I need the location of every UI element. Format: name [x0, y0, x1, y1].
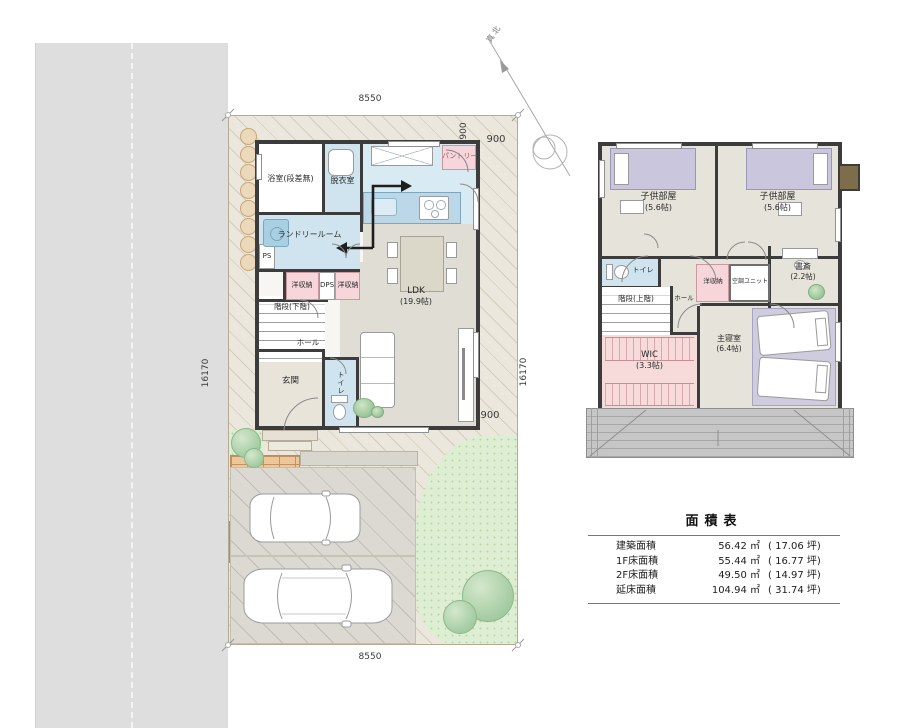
room-label-wic: WIC (3.3帖)	[602, 350, 697, 371]
room-label-toilet-2f: トイレ	[628, 266, 658, 275]
table-row: 2F床面積 49.50 ㎡ ( 14.97 坪)	[588, 569, 840, 584]
window	[256, 154, 262, 180]
row-m2: 55.44 ㎡	[688, 555, 760, 570]
area-table-title: 面積表	[588, 510, 840, 529]
tree-icon	[443, 600, 477, 634]
sofa-icon	[360, 332, 395, 408]
roof-1f	[586, 408, 854, 458]
room-label-master: 主寝室 (6.4帖)	[698, 334, 760, 354]
room-label-ldk: LDK (19.9帖)	[383, 286, 449, 309]
room-label-closet-west: 洋収納	[283, 281, 321, 290]
pillow-icon	[815, 318, 828, 347]
walkway	[300, 451, 418, 466]
row-m2: 104.94 ㎡	[688, 584, 760, 599]
wall	[325, 357, 356, 360]
dim-offset-top-v: 900	[459, 117, 469, 145]
room-label-hall-2f: ホール	[670, 294, 698, 302]
window	[835, 322, 841, 362]
child-right-name: 子供部屋	[759, 192, 795, 202]
room-label-laundry: ランドリールーム	[259, 230, 360, 240]
chair-icon	[387, 268, 398, 284]
window	[473, 332, 479, 378]
wic-name: WIC	[641, 350, 658, 360]
master-size: (6.4帖)	[716, 344, 741, 353]
window	[752, 143, 818, 149]
child-left-name: 子供部屋	[640, 192, 676, 202]
room-label-stairs-2f: 階段(上階)	[602, 294, 670, 303]
toilet-icon	[606, 264, 613, 280]
wall	[259, 212, 360, 215]
roof-side	[838, 408, 854, 458]
dim-offset-top-h: 900	[482, 134, 510, 145]
room-label-ps: PS	[259, 252, 275, 261]
room-label-dps: DPS	[318, 281, 336, 290]
car-icon	[248, 490, 362, 546]
chair-icon	[446, 242, 457, 258]
dim-offset-bottom: 900	[476, 410, 504, 421]
table-row: 延床面積 104.94 ㎡ ( 31.74 坪)	[588, 584, 840, 599]
roof-side	[586, 408, 602, 458]
porch-step	[262, 430, 318, 441]
car-icon	[242, 564, 394, 628]
room-label-ac-unit: 空調ユニット	[726, 278, 774, 286]
plant-icon	[808, 284, 825, 300]
study-desk	[782, 248, 818, 259]
window	[339, 427, 429, 433]
window	[835, 208, 841, 242]
master-name: 主寝室	[717, 334, 741, 343]
compass-label: 真北	[480, 17, 507, 50]
area-table: 面積表 建築面積 56.42 ㎡ ( 17.06 坪) 1F床面積 55.44 …	[588, 510, 840, 608]
ldk-name: LDK	[407, 286, 425, 296]
child-left-size: (5.6帖)	[645, 203, 672, 212]
hanger-rack	[605, 383, 694, 406]
road-center-line	[131, 43, 133, 728]
toilet-icon	[333, 404, 346, 420]
shutter-box	[838, 164, 860, 191]
house-2f: 子供部屋 (5.6帖) 子供部屋 (5.6帖) トイレ 階段(上階) ホール 洋…	[598, 142, 842, 412]
divider	[588, 535, 840, 536]
dim-right: 16170	[519, 352, 529, 392]
table-row: 1F床面積 55.44 ㎡ ( 16.77 坪)	[588, 555, 840, 570]
kitchen-stove	[419, 196, 449, 220]
wall	[697, 306, 700, 408]
wall	[322, 352, 325, 426]
wall	[259, 349, 325, 352]
tv-icon	[462, 348, 465, 400]
room-label-dressing: 脱衣室	[325, 176, 360, 186]
kitchen-cabinet	[371, 146, 433, 166]
porch-step	[268, 441, 312, 451]
tv-board	[458, 328, 474, 422]
row-tsubo: ( 14.97 坪)	[760, 569, 854, 584]
child-right-size: (5.6帖)	[764, 203, 791, 212]
room-label-bath: 浴室(段差無)	[259, 174, 322, 184]
wall	[658, 256, 661, 286]
kitchen-sink	[371, 198, 397, 216]
study-name: 書斎	[795, 262, 811, 271]
row-label: 2F床面積	[616, 569, 688, 584]
house-1f: 浴室(段差無) 脱衣室 パントリー ランドリールーム PS 洋収納 DPS 洋収…	[255, 140, 480, 430]
dim-top: 8550	[340, 94, 400, 104]
window	[388, 141, 440, 147]
room-label-hall-1f: ホール	[277, 338, 339, 347]
pillow-icon	[815, 365, 828, 394]
row-label: 建築面積	[616, 540, 688, 555]
row-tsubo: ( 17.06 坪)	[760, 540, 854, 555]
chair-icon	[446, 268, 457, 284]
room-label-pantry: パントリー	[442, 152, 476, 161]
wall	[700, 303, 838, 306]
pillow-icon	[614, 153, 629, 185]
ldk-size: (19.9帖)	[400, 297, 432, 306]
room-label-entrance: 玄関	[259, 376, 322, 387]
dining-table	[400, 236, 444, 292]
window	[473, 188, 479, 230]
room-label-toilet-1f: トイレ	[333, 366, 345, 400]
dim-left: 16170	[201, 353, 211, 393]
window	[616, 143, 682, 149]
room-label-closet-east: 洋収納	[335, 281, 361, 290]
pillow-icon	[813, 153, 828, 185]
toilet-icon	[614, 265, 629, 279]
study-size: (2.2帖)	[790, 272, 815, 281]
room-label-study: 書斎 (2.2帖)	[768, 262, 838, 282]
room-label-child-left: 子供部屋 (5.6帖)	[602, 192, 715, 215]
row-tsubo: ( 31.74 坪)	[760, 584, 854, 599]
room-entrance	[259, 352, 322, 426]
parking-divider	[230, 555, 416, 557]
chair-icon	[387, 242, 398, 258]
wic-size: (3.3帖)	[636, 361, 663, 370]
room-label-child-right: 子供部屋 (5.6帖)	[717, 192, 838, 215]
plant-icon	[371, 406, 384, 418]
shrub-icon	[244, 448, 264, 468]
row-tsubo: ( 16.77 坪)	[760, 555, 854, 570]
floor-plan-page: 浴室(段差無) 脱衣室 パントリー ランドリールーム PS 洋収納 DPS 洋収…	[0, 0, 900, 728]
room-label-stairs-1f: 階段(下階)	[259, 302, 325, 311]
window	[599, 160, 605, 198]
divider	[588, 603, 840, 604]
row-label: 1F床面積	[616, 555, 688, 570]
vanity-icon	[328, 149, 354, 176]
row-m2: 56.42 ㎡	[688, 540, 760, 555]
row-m2: 49.50 ㎡	[688, 569, 760, 584]
dim-bottom: 8550	[340, 652, 400, 662]
row-label: 延床面積	[616, 584, 688, 599]
table-row: 建築面積 56.42 ㎡ ( 17.06 坪)	[588, 540, 840, 555]
